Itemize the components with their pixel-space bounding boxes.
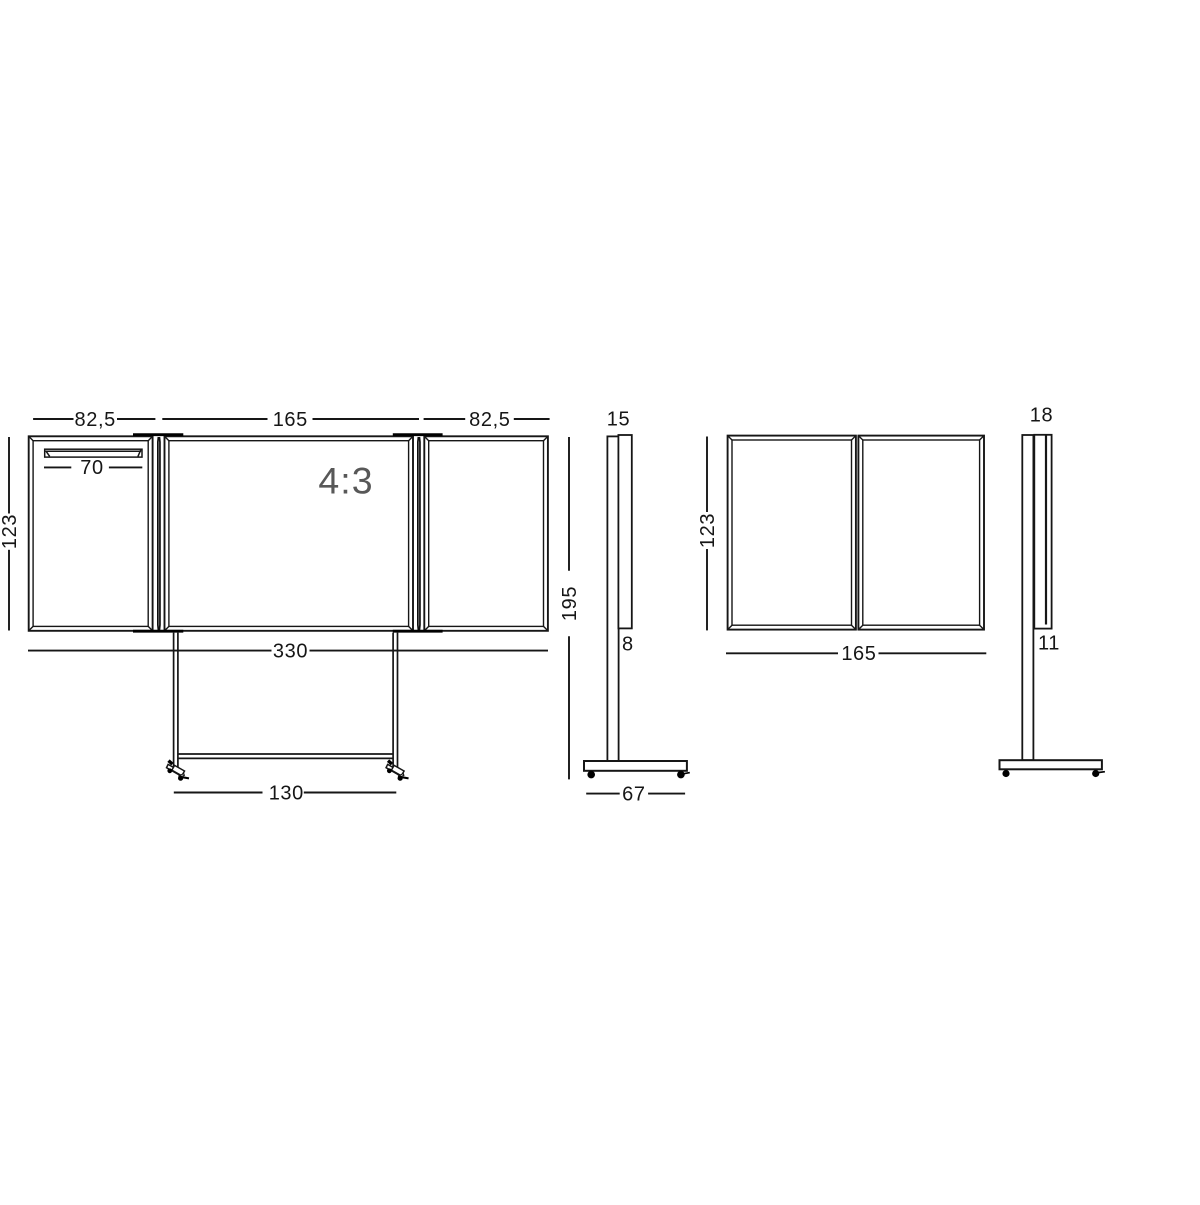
- svg-text:330: 330: [273, 640, 308, 662]
- svg-text:15: 15: [607, 409, 630, 431]
- svg-text:82,5: 82,5: [469, 409, 510, 431]
- svg-text:165: 165: [841, 643, 876, 665]
- svg-text:11: 11: [1038, 632, 1060, 654]
- svg-text:82,5: 82,5: [75, 409, 116, 431]
- svg-text:123: 123: [697, 513, 719, 548]
- svg-text:195: 195: [559, 586, 581, 621]
- svg-text:18: 18: [1030, 405, 1053, 427]
- svg-text:8: 8: [622, 633, 634, 655]
- svg-text:130: 130: [269, 782, 304, 804]
- svg-text:4:3: 4:3: [318, 460, 373, 502]
- svg-text:123: 123: [0, 514, 21, 549]
- svg-text:70: 70: [80, 457, 103, 479]
- svg-text:67: 67: [622, 783, 645, 805]
- svg-text:165: 165: [273, 409, 308, 431]
